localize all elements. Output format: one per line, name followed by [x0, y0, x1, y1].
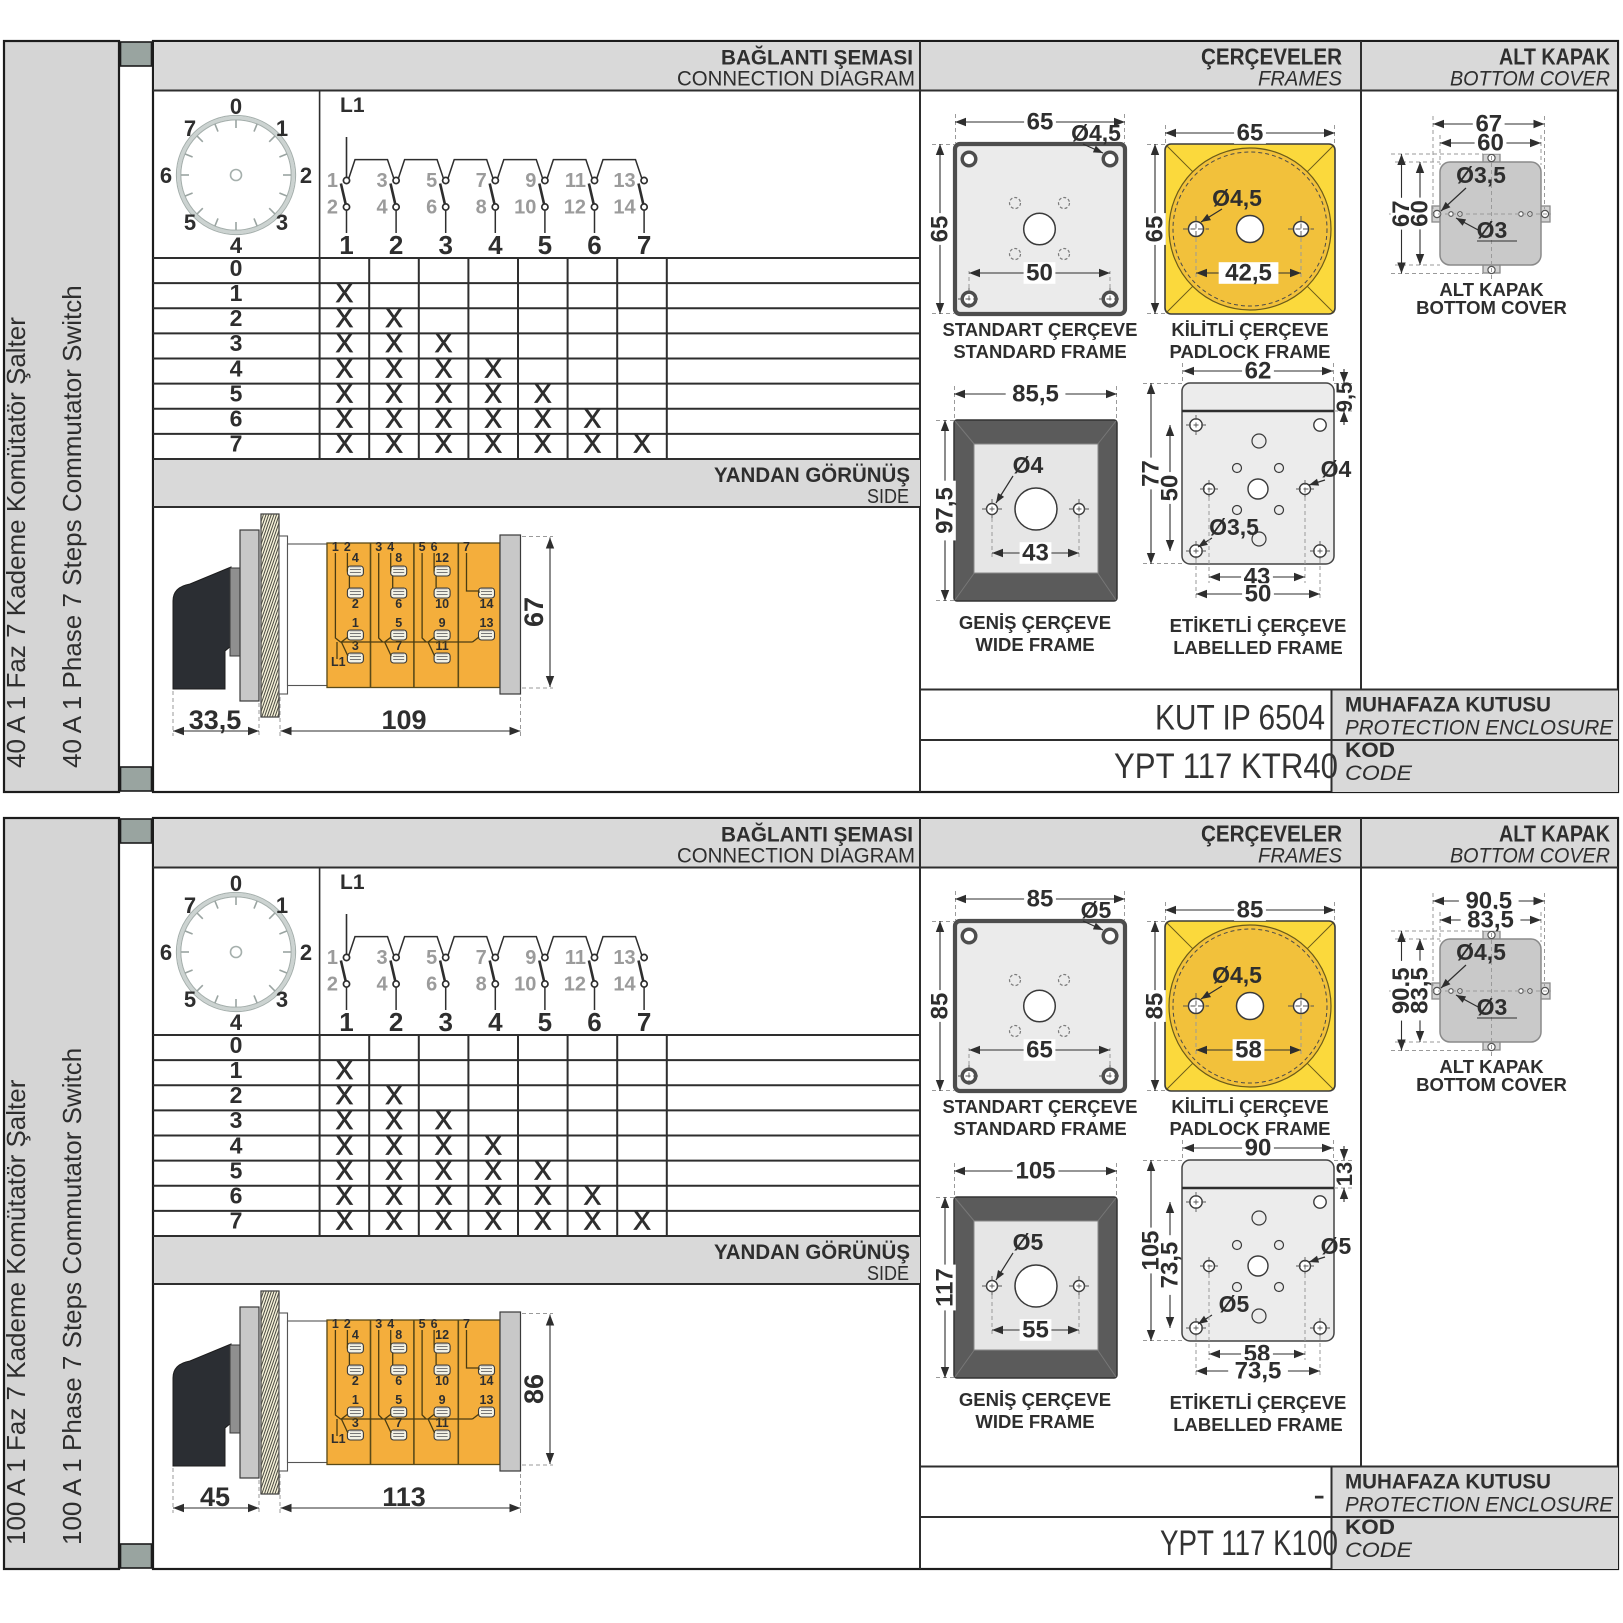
svg-text:7: 7: [395, 639, 402, 653]
svg-text:97,5: 97,5: [932, 487, 959, 534]
svg-text:3: 3: [230, 330, 243, 356]
svg-text:3: 3: [438, 230, 452, 260]
svg-text:0: 0: [230, 1032, 243, 1058]
svg-text:11: 11: [565, 947, 586, 969]
svg-text:X: X: [336, 429, 353, 459]
svg-text:YANDAN GÖRÜNÜŞ: YANDAN GÖRÜNÜŞ: [714, 1239, 910, 1264]
svg-text:Ø4,5: Ø4,5: [1071, 120, 1121, 146]
svg-text:3: 3: [352, 639, 359, 653]
svg-text:65: 65: [1237, 120, 1264, 147]
svg-text:58: 58: [1235, 1037, 1262, 1064]
svg-text:10: 10: [514, 974, 536, 996]
svg-text:85: 85: [927, 993, 954, 1020]
svg-text:2: 2: [230, 1082, 243, 1108]
svg-text:12: 12: [435, 551, 449, 565]
svg-text:Ø4,5: Ø4,5: [1456, 939, 1506, 965]
svg-text:9: 9: [525, 170, 536, 192]
svg-text:4: 4: [488, 1007, 503, 1037]
svg-text:SIDE: SIDE: [867, 486, 909, 508]
svg-text:YPT 117 KTR40: YPT 117 KTR40: [1114, 747, 1338, 786]
svg-text:X: X: [485, 429, 502, 459]
svg-text:X: X: [385, 1206, 402, 1236]
svg-text:WIDE FRAME: WIDE FRAME: [975, 1411, 1094, 1432]
svg-text:5: 5: [395, 1393, 402, 1407]
svg-text:X: X: [435, 1206, 452, 1236]
svg-text:CONNECTION DIAGRAM: CONNECTION DIAGRAM: [677, 845, 915, 868]
svg-text:2: 2: [300, 940, 312, 965]
svg-text:10: 10: [435, 597, 449, 611]
svg-text:13: 13: [480, 616, 494, 630]
svg-text:Ø3: Ø3: [1477, 994, 1508, 1020]
svg-text:83,5: 83,5: [1467, 907, 1514, 934]
svg-text:KOD: KOD: [1345, 1516, 1395, 1539]
svg-text:4: 4: [376, 974, 388, 996]
svg-text:5: 5: [538, 1007, 552, 1037]
svg-text:113: 113: [382, 1482, 426, 1512]
svg-text:40 A 1 Faz 7 Kademe Komütatör: 40 A 1 Faz 7 Kademe Komütatör Şalter: [1, 317, 31, 768]
svg-text:L1: L1: [340, 871, 365, 894]
svg-text:L1: L1: [331, 655, 346, 669]
svg-text:42,5: 42,5: [1225, 260, 1272, 287]
svg-text:MUHAFAZA KUTUSU: MUHAFAZA KUTUSU: [1345, 694, 1551, 717]
svg-text:CODE: CODE: [1345, 1539, 1413, 1562]
svg-text:13: 13: [613, 947, 635, 969]
svg-text:85: 85: [1027, 886, 1054, 913]
svg-text:L1: L1: [340, 94, 365, 117]
svg-text:KİLİTLİ ÇERÇEVE: KİLİTLİ ÇERÇEVE: [1171, 1096, 1328, 1117]
svg-text:9,5: 9,5: [1332, 382, 1357, 413]
svg-text:3: 3: [375, 540, 382, 554]
svg-text:2: 2: [344, 1317, 351, 1331]
svg-text:5: 5: [426, 170, 437, 192]
svg-text:12: 12: [564, 974, 586, 996]
svg-text:Ø4,5: Ø4,5: [1212, 185, 1262, 211]
svg-text:2: 2: [389, 1007, 403, 1037]
svg-text:BOTTOM COVER: BOTTOM COVER: [1450, 67, 1610, 91]
svg-text:5: 5: [184, 987, 196, 1012]
svg-text:7: 7: [395, 1416, 402, 1430]
svg-text:55: 55: [1022, 1317, 1049, 1344]
svg-text:6: 6: [230, 406, 243, 432]
svg-text:3: 3: [276, 987, 288, 1012]
svg-text:STANDART ÇERÇEVE: STANDART ÇERÇEVE: [943, 319, 1138, 340]
svg-text:FRAMES: FRAMES: [1258, 844, 1343, 868]
svg-text:CONNECTION DIAGRAM: CONNECTION DIAGRAM: [677, 68, 915, 91]
svg-text:PROTECTION ENCLOSURE: PROTECTION ENCLOSURE: [1345, 717, 1614, 740]
svg-text:5: 5: [419, 1317, 426, 1331]
svg-text:Ø4: Ø4: [1013, 452, 1044, 478]
svg-text:8: 8: [476, 974, 487, 996]
svg-text:6: 6: [395, 597, 402, 611]
svg-text:67: 67: [519, 597, 549, 627]
svg-text:Ø5: Ø5: [1013, 1229, 1044, 1255]
svg-text:105: 105: [1015, 1158, 1055, 1185]
svg-text:2: 2: [327, 974, 338, 996]
svg-text:X: X: [435, 429, 452, 459]
svg-text:2: 2: [300, 163, 312, 188]
svg-text:STANDARD FRAME: STANDARD FRAME: [953, 1118, 1126, 1139]
svg-text:2: 2: [344, 540, 351, 554]
svg-text:65: 65: [1142, 216, 1169, 243]
svg-text:1: 1: [327, 170, 338, 192]
svg-text:7: 7: [463, 1317, 470, 1331]
svg-text:14: 14: [480, 1374, 494, 1388]
svg-text:14: 14: [613, 974, 636, 996]
svg-text:65: 65: [927, 216, 954, 243]
svg-text:11: 11: [435, 1416, 448, 1430]
svg-text:14: 14: [613, 197, 636, 219]
svg-text:4: 4: [352, 551, 359, 565]
svg-text:BOTTOM COVER: BOTTOM COVER: [1416, 297, 1567, 318]
svg-text:7: 7: [230, 1208, 243, 1234]
svg-text:117: 117: [932, 1268, 959, 1307]
svg-text:1: 1: [276, 893, 288, 918]
svg-text:5: 5: [184, 210, 196, 235]
svg-text:1: 1: [332, 1317, 339, 1331]
svg-text:60: 60: [1407, 200, 1434, 227]
svg-text:11: 11: [435, 639, 448, 653]
svg-text:9: 9: [525, 947, 536, 969]
svg-text:3: 3: [276, 210, 288, 235]
svg-text:65: 65: [1027, 109, 1054, 136]
svg-text:4: 4: [352, 1328, 359, 1342]
svg-text:50: 50: [1026, 260, 1053, 287]
svg-text:33,5: 33,5: [189, 705, 242, 735]
svg-text:13: 13: [1332, 1162, 1357, 1186]
svg-text:13: 13: [480, 1393, 494, 1407]
svg-text:1: 1: [352, 616, 359, 630]
svg-text:3: 3: [376, 947, 387, 969]
svg-text:5: 5: [538, 230, 552, 260]
svg-text:Ø5: Ø5: [1321, 1233, 1352, 1259]
svg-text:1: 1: [230, 1057, 243, 1083]
svg-text:Ø4,5: Ø4,5: [1212, 962, 1262, 988]
svg-text:7: 7: [476, 170, 487, 192]
svg-text:6: 6: [395, 1374, 402, 1388]
svg-text:13: 13: [613, 170, 635, 192]
svg-text:109: 109: [381, 705, 426, 735]
svg-text:4: 4: [387, 540, 394, 554]
svg-text:6: 6: [230, 1183, 243, 1209]
svg-text:Ø3,5: Ø3,5: [1209, 514, 1259, 540]
svg-text:1: 1: [327, 947, 338, 969]
svg-text:12: 12: [564, 197, 586, 219]
svg-text:0: 0: [230, 94, 242, 119]
svg-text:SIDE: SIDE: [867, 1263, 909, 1285]
svg-text:7: 7: [637, 1007, 651, 1037]
svg-text:Ø5: Ø5: [1081, 897, 1112, 923]
svg-text:6: 6: [426, 974, 437, 996]
svg-text:ETİKETLİ ÇERÇEVE: ETİKETLİ ÇERÇEVE: [1170, 1392, 1347, 1413]
svg-text:CODE: CODE: [1345, 762, 1413, 785]
svg-text:1: 1: [339, 230, 353, 260]
svg-text:X: X: [584, 429, 601, 459]
svg-text:100 A 1 Phase 7 Steps Commutat: 100 A 1 Phase 7 Steps Commutator Switch: [57, 1048, 87, 1545]
svg-text:8: 8: [395, 551, 402, 565]
svg-text:4: 4: [387, 1317, 394, 1331]
svg-text:83,5: 83,5: [1407, 967, 1434, 1014]
svg-text:LABELLED FRAME: LABELLED FRAME: [1173, 1414, 1343, 1435]
svg-text:50: 50: [1245, 581, 1272, 608]
svg-text:2: 2: [352, 1374, 359, 1388]
svg-text:BAĞLANTI ŞEMASI: BAĞLANTI ŞEMASI: [721, 823, 913, 847]
svg-text:5: 5: [426, 947, 437, 969]
svg-text:7: 7: [476, 947, 487, 969]
svg-text:3: 3: [230, 1107, 243, 1133]
svg-text:65: 65: [1026, 1037, 1053, 1064]
svg-text:73,5: 73,5: [1235, 1358, 1282, 1385]
svg-text:KİLİTLİ ÇERÇEVE: KİLİTLİ ÇERÇEVE: [1171, 319, 1328, 340]
svg-text:STANDARD FRAME: STANDARD FRAME: [953, 341, 1126, 362]
svg-text:1: 1: [332, 540, 339, 554]
svg-text:85,5: 85,5: [1012, 381, 1059, 408]
svg-text:90: 90: [1245, 1135, 1272, 1162]
svg-text:4: 4: [488, 230, 503, 260]
svg-text:LABELLED FRAME: LABELLED FRAME: [1173, 637, 1343, 658]
svg-text:40 A 1 Phase 7 Steps Commutato: 40 A 1 Phase 7 Steps Commutator Switch: [57, 285, 87, 768]
svg-text:45: 45: [200, 1482, 230, 1512]
svg-text:5: 5: [419, 540, 426, 554]
svg-text:PROTECTION ENCLOSURE: PROTECTION ENCLOSURE: [1345, 1494, 1614, 1517]
svg-text:X: X: [633, 1206, 650, 1236]
svg-text:1: 1: [339, 1007, 353, 1037]
svg-text:6: 6: [160, 940, 172, 965]
svg-text:7: 7: [230, 431, 243, 457]
svg-text:X: X: [336, 1206, 353, 1236]
svg-text:3: 3: [352, 1416, 359, 1430]
svg-text:3: 3: [438, 1007, 452, 1037]
svg-text:10: 10: [435, 1374, 449, 1388]
svg-text:1: 1: [276, 116, 288, 141]
svg-text:2: 2: [327, 197, 338, 219]
svg-text:11: 11: [565, 170, 586, 192]
svg-text:YPT 117 K100: YPT 117 K100: [1160, 1524, 1338, 1563]
svg-text:GENİŞ ÇERÇEVE: GENİŞ ÇERÇEVE: [959, 1389, 1111, 1410]
svg-text:10: 10: [514, 197, 536, 219]
svg-text:1: 1: [230, 280, 243, 306]
svg-text:6: 6: [587, 1007, 601, 1037]
svg-text:Ø4: Ø4: [1321, 456, 1352, 482]
svg-text:85: 85: [1142, 993, 1169, 1020]
svg-text:100 A 1 Faz 7 Kademe Komütatör: 100 A 1 Faz 7 Kademe Komütatör Şalter: [1, 1079, 31, 1545]
svg-text:12: 12: [435, 1328, 449, 1342]
svg-text:YANDAN GÖRÜNÜŞ: YANDAN GÖRÜNÜŞ: [714, 462, 910, 487]
svg-text:50: 50: [1157, 475, 1184, 502]
svg-text:86: 86: [519, 1374, 549, 1404]
svg-text:14: 14: [480, 597, 494, 611]
svg-text:43: 43: [1022, 540, 1049, 567]
svg-text:X: X: [534, 429, 551, 459]
svg-text:5: 5: [395, 616, 402, 630]
svg-text:2: 2: [352, 597, 359, 611]
svg-text:Ø5: Ø5: [1219, 1291, 1250, 1317]
svg-text:2: 2: [389, 230, 403, 260]
svg-text:7: 7: [463, 540, 470, 554]
svg-text:7: 7: [184, 116, 196, 141]
svg-text:STANDART ÇERÇEVE: STANDART ÇERÇEVE: [943, 1096, 1138, 1117]
svg-text:73,5: 73,5: [1157, 1242, 1184, 1289]
svg-text:WIDE FRAME: WIDE FRAME: [975, 634, 1094, 655]
svg-text:X: X: [584, 1206, 601, 1236]
svg-text:7: 7: [184, 893, 196, 918]
svg-text:62: 62: [1245, 358, 1272, 385]
svg-text:1: 1: [352, 1393, 359, 1407]
svg-text:L1: L1: [331, 1432, 346, 1446]
svg-text:3: 3: [375, 1317, 382, 1331]
svg-text:8: 8: [395, 1328, 402, 1342]
svg-text:GENİŞ ÇERÇEVE: GENİŞ ÇERÇEVE: [959, 612, 1111, 633]
svg-text:60: 60: [1477, 130, 1504, 157]
svg-text:Ø3,5: Ø3,5: [1456, 162, 1506, 188]
svg-text:X: X: [485, 1206, 502, 1236]
svg-text:X: X: [633, 429, 650, 459]
svg-text:KUT IP 6504: KUT IP 6504: [1155, 699, 1325, 738]
svg-text:6: 6: [587, 230, 601, 260]
svg-text:5: 5: [230, 380, 243, 406]
svg-text:BOTTOM COVER: BOTTOM COVER: [1416, 1074, 1567, 1095]
svg-text:KOD: KOD: [1345, 739, 1395, 762]
svg-text:9: 9: [439, 1393, 446, 1407]
svg-text:4: 4: [376, 197, 388, 219]
svg-text:9: 9: [439, 616, 446, 630]
svg-text:5: 5: [230, 1158, 243, 1184]
svg-text:ETİKETLİ ÇERÇEVE: ETİKETLİ ÇERÇEVE: [1170, 615, 1347, 636]
svg-text:Ø3: Ø3: [1477, 217, 1508, 243]
svg-text:8: 8: [476, 197, 487, 219]
svg-text:4: 4: [230, 1132, 243, 1158]
svg-text:4: 4: [230, 355, 243, 381]
svg-text:0: 0: [230, 871, 242, 896]
svg-text:6: 6: [426, 197, 437, 219]
svg-text:0: 0: [230, 255, 243, 281]
svg-text:X: X: [385, 429, 402, 459]
svg-text:7: 7: [637, 230, 651, 260]
svg-text:FRAMES: FRAMES: [1258, 67, 1343, 91]
svg-text:2: 2: [230, 305, 243, 331]
svg-text:BOTTOM COVER: BOTTOM COVER: [1450, 844, 1610, 868]
svg-text:-: -: [1313, 1476, 1325, 1515]
svg-text:BAĞLANTI ŞEMASI: BAĞLANTI ŞEMASI: [721, 46, 913, 70]
svg-text:3: 3: [376, 170, 387, 192]
svg-text:85: 85: [1237, 897, 1264, 924]
svg-text:6: 6: [160, 163, 172, 188]
svg-text:X: X: [534, 1206, 551, 1236]
svg-text:MUHAFAZA KUTUSU: MUHAFAZA KUTUSU: [1345, 1471, 1551, 1494]
